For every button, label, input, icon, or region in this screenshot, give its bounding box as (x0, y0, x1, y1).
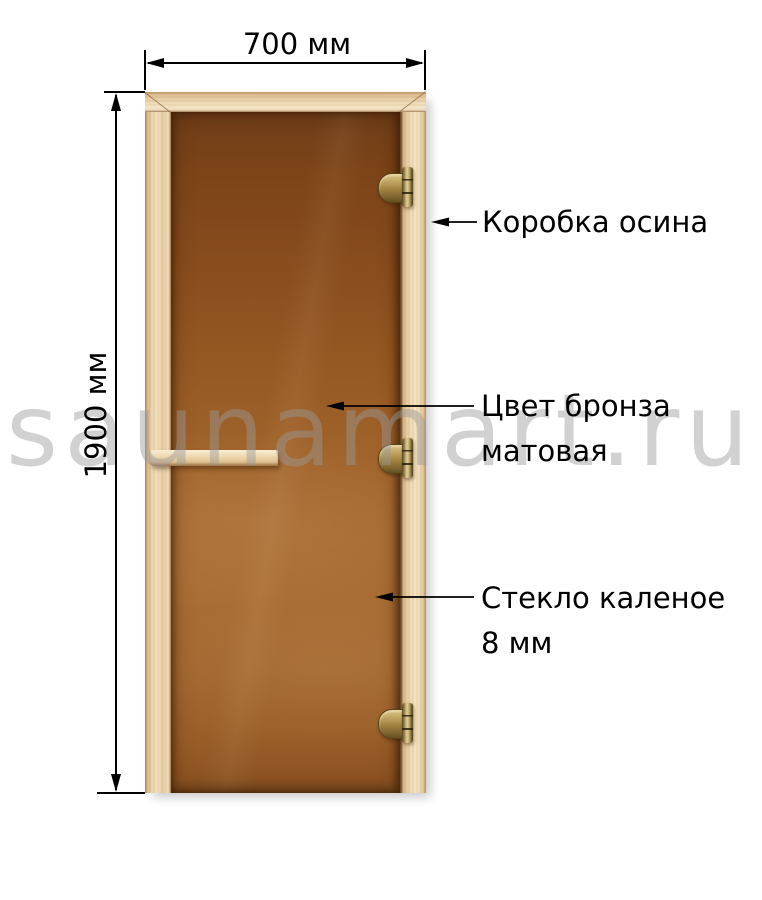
callout-glass-color-line2: матовая (481, 429, 671, 474)
callout-frame-material-label: Коробка осина (482, 200, 708, 245)
arrowhead-up-icon (111, 93, 121, 111)
callout-glass-color-label: Цвет бронза матовая (481, 384, 671, 474)
product-diagram: saunamart.ru (0, 0, 762, 900)
arrowhead-callout-glass-icon (375, 593, 393, 602)
arrowhead-left-icon (146, 58, 164, 68)
height-dimension-label: 1900 мм (79, 352, 113, 479)
callout-glass-color-line1: Цвет бронза (481, 384, 671, 429)
callout-glass-type-line2: 8 мм (481, 621, 725, 666)
callout-glass-type-label: Стекло каленое 8 мм (481, 576, 725, 666)
arrowhead-down-icon (111, 774, 121, 792)
arrowhead-callout-frame-icon (431, 218, 449, 227)
arrowhead-callout-color-icon (326, 402, 344, 411)
arrowhead-right-icon (406, 58, 424, 68)
callout-glass-type-line1: Стекло каленое (481, 576, 725, 621)
width-dimension-label: 700 мм (197, 27, 397, 61)
